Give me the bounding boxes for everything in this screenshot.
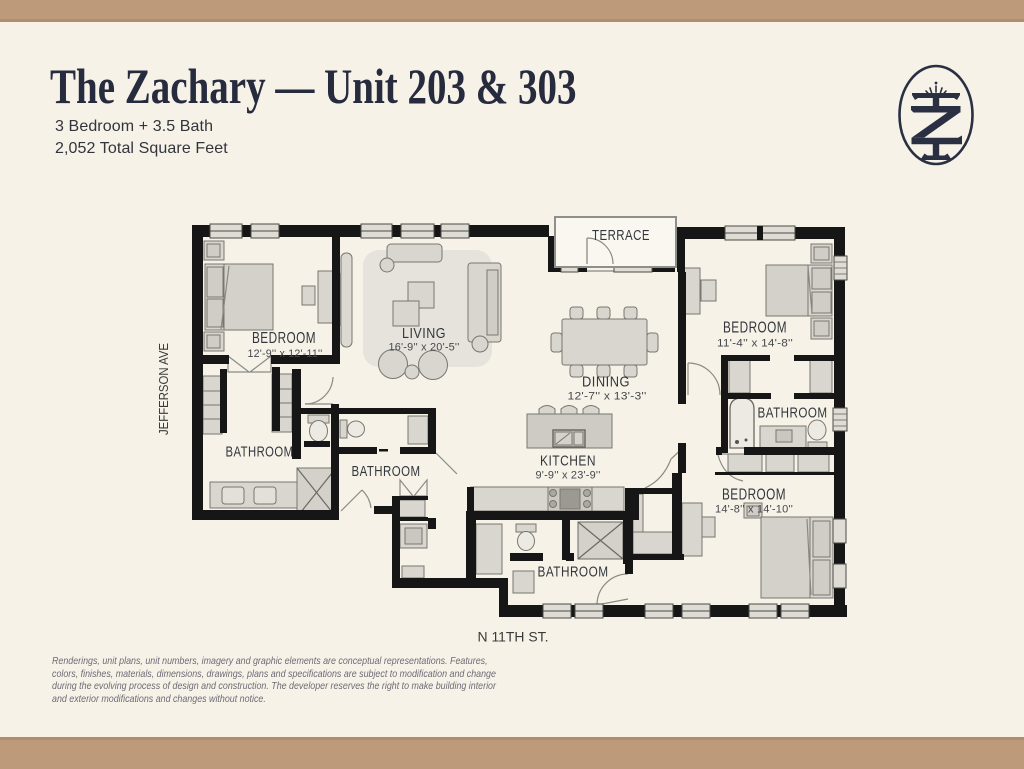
svg-text:BATHROOM: BATHROOM [352, 463, 421, 480]
svg-text:11'-4'' x 14'-8'': 11'-4'' x 14'-8'' [717, 338, 793, 350]
svg-text:16'-9'' x 20'-5'': 16'-9'' x 20'-5'' [389, 342, 460, 354]
svg-text:BEDROOM: BEDROOM [252, 330, 316, 347]
svg-text:BATHROOM: BATHROOM [758, 405, 828, 422]
svg-text:DINING: DINING [582, 374, 630, 391]
svg-text:12'-9'' x 12'-11'': 12'-9'' x 12'-11'' [248, 348, 323, 360]
svg-text:12'-7'' x 13'-3'': 12'-7'' x 13'-3'' [568, 391, 647, 403]
svg-text:TERRACE: TERRACE [592, 227, 650, 244]
svg-text:BATHROOM: BATHROOM [226, 444, 294, 461]
svg-text:BEDROOM: BEDROOM [722, 487, 786, 504]
svg-text:9'-9'' x 23'-9'': 9'-9'' x 23'-9'' [536, 470, 601, 482]
svg-text:LIVING: LIVING [402, 325, 446, 342]
svg-text:BATHROOM: BATHROOM [538, 564, 609, 581]
svg-text:JEFFERSON AVE: JEFFERSON AVE [156, 343, 171, 435]
svg-text:14'-8'' x 14'-10'': 14'-8'' x 14'-10'' [715, 504, 793, 516]
svg-text:KITCHEN: KITCHEN [540, 453, 596, 470]
svg-text:BEDROOM: BEDROOM [723, 320, 787, 337]
svg-text:N 11TH ST.: N 11TH ST. [478, 629, 549, 645]
